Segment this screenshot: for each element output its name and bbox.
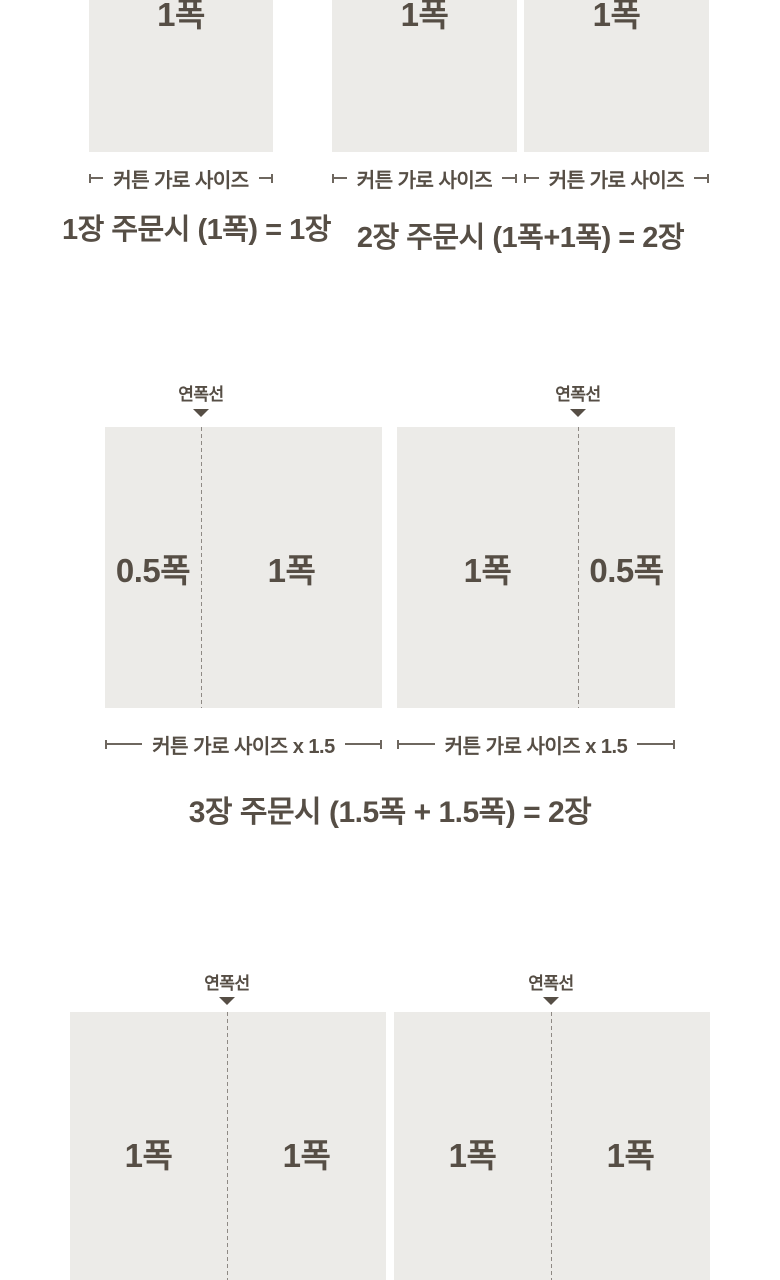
measure-tick xyxy=(673,740,675,749)
panel-width-label: 0.5폭 xyxy=(116,544,190,592)
panel-width-label: 1폭 xyxy=(125,1129,173,1177)
width-measure: 커튼 가로 사이즈 xyxy=(332,167,517,189)
panel-width-label: 0.5폭 xyxy=(589,544,663,592)
panel-region: 1폭 xyxy=(397,427,578,708)
order-formula-caption: 2장 주문시 (1폭+1폭) = 2장 xyxy=(332,222,709,254)
panel-width-label: 1폭 xyxy=(449,1129,497,1177)
curtain-panel: 1폭 1폭 xyxy=(394,1012,710,1280)
measure-line xyxy=(502,177,515,179)
measure-tick xyxy=(271,174,273,183)
panel-width-label: 1폭 xyxy=(401,0,449,36)
panel-width-label: 1폭 xyxy=(464,544,512,592)
triangle-down-icon xyxy=(219,997,235,1005)
width-measure-label: 커튼 가로 사이즈 xyxy=(113,164,248,193)
measure-line xyxy=(107,743,142,745)
width-measure-label: 커튼 가로 사이즈 xyxy=(549,164,684,193)
measure-line xyxy=(334,177,347,179)
order-formula-caption: 1장 주문시 (1폭) = 1장 xyxy=(62,214,302,246)
panel-region: 1폭 xyxy=(201,427,382,708)
join-dashed-line xyxy=(227,1012,228,1280)
panel-region: 1폭 xyxy=(551,1012,710,1280)
join-dashed-line xyxy=(201,427,202,708)
measure-tick xyxy=(707,174,709,183)
panel-width-label: 1폭 xyxy=(157,0,205,36)
width-measure: 커튼 가로 사이즈 x 1.5 xyxy=(397,733,675,755)
measure-line xyxy=(399,743,435,745)
panel-region: 1폭 xyxy=(227,1012,386,1280)
panel-width-label: 1폭 xyxy=(268,544,316,592)
measure-line xyxy=(637,743,673,745)
order-formula-caption: 3장 주문시 (1.5폭 + 1.5폭) = 2장 xyxy=(0,797,780,829)
triangle-down-icon xyxy=(570,409,586,417)
width-measure: 커튼 가로 사이즈 x 1.5 xyxy=(105,733,382,755)
measure-tick xyxy=(515,174,517,183)
width-measure-label: 커튼 가로 사이즈 x 1.5 xyxy=(152,730,334,759)
width-measure: 커튼 가로 사이즈 xyxy=(524,167,709,189)
panel-region: 1폭 xyxy=(70,1012,227,1280)
panel-width-label: 1폭 xyxy=(607,1129,655,1177)
panel-region: 0.5폭 xyxy=(105,427,201,708)
panel-width-label: 1폭 xyxy=(283,1129,331,1177)
measure-line xyxy=(526,177,539,179)
panel-width-label: 1폭 xyxy=(593,0,641,36)
measure-line xyxy=(91,177,103,179)
width-measure-label: 커튼 가로 사이즈 x 1.5 xyxy=(445,730,627,759)
triangle-down-icon xyxy=(193,409,209,417)
curtain-panel: 0.5폭 1폭 xyxy=(105,427,382,708)
curtain-panel: 1폭 xyxy=(89,0,273,152)
join-line-label: 연폭선 xyxy=(151,385,251,405)
join-line-label: 연폭선 xyxy=(501,974,601,994)
triangle-down-icon xyxy=(543,997,559,1005)
panel-region: 1폭 xyxy=(394,1012,551,1280)
curtain-panel: 1폭 xyxy=(332,0,517,152)
measure-tick xyxy=(380,740,382,749)
curtain-panel-width-guide: 1폭 1폭 1폭 커튼 가로 사이즈 커튼 가로 사이즈 커튼 가로 사이즈 xyxy=(0,0,780,1280)
measure-line xyxy=(694,177,707,179)
join-line-label: 연폭선 xyxy=(528,385,628,405)
width-measure-label: 커튼 가로 사이즈 xyxy=(357,164,492,193)
measure-line xyxy=(345,743,380,745)
join-line-label: 연폭선 xyxy=(177,974,277,994)
curtain-panel: 1폭 0.5폭 xyxy=(397,427,675,708)
curtain-panel: 1폭 xyxy=(524,0,709,152)
join-dashed-line xyxy=(578,427,579,708)
panel-region: 0.5폭 xyxy=(578,427,675,708)
width-measure: 커튼 가로 사이즈 xyxy=(89,167,273,189)
curtain-panel: 1폭 1폭 xyxy=(70,1012,386,1280)
join-dashed-line xyxy=(551,1012,552,1280)
measure-line xyxy=(259,177,271,179)
